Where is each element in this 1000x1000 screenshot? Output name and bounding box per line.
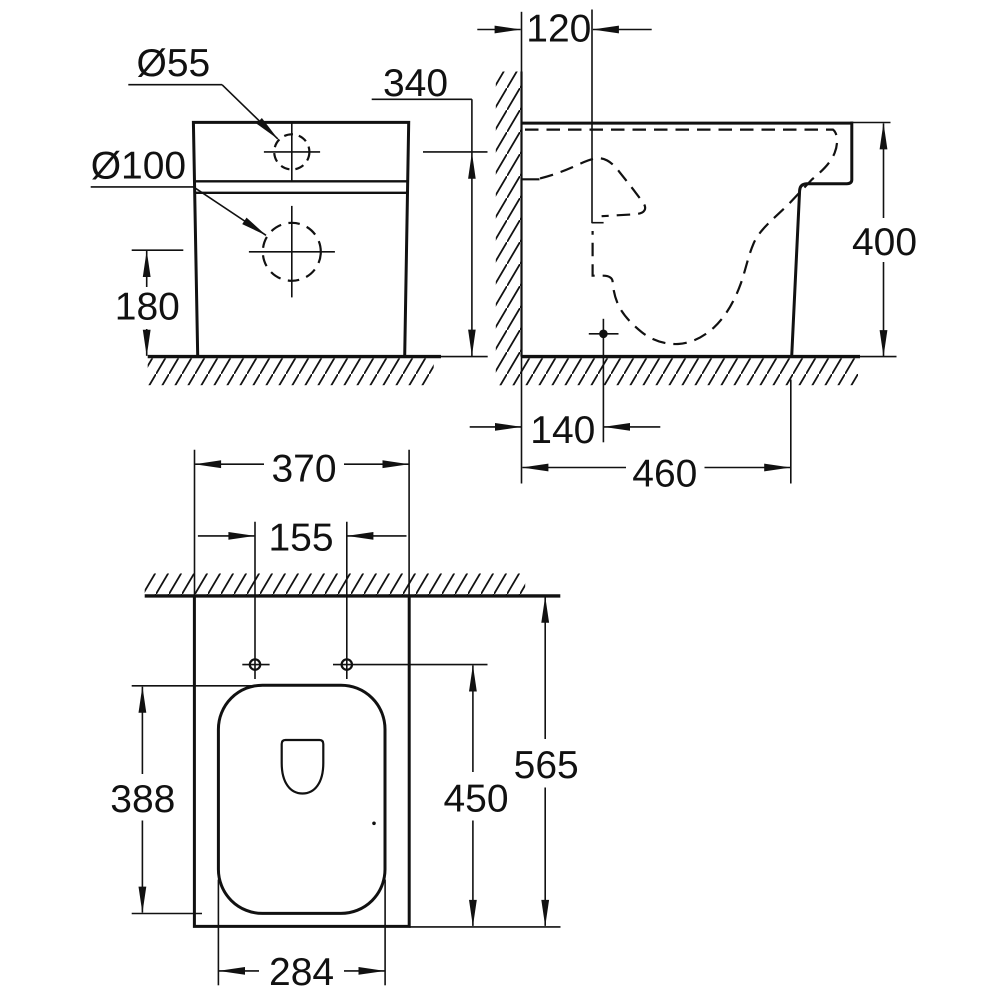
dim-155-text: 155 [268,516,333,559]
dim-460-text: 460 [632,452,697,495]
dim-388-text: 388 [110,778,175,821]
dim-180-text: 180 [115,286,180,329]
front-floor-hatch [148,358,434,385]
dim-370-text: 370 [271,447,336,490]
outlet-diameter-text: Ø100 [91,145,186,188]
top-wall-hatch [145,574,526,596]
inlet-diameter-text: Ø55 [137,42,211,85]
dim-284-text: 284 [269,951,334,994]
dim-120-text: 120 [526,7,591,50]
side-wall-hatch [496,72,522,386]
print-speck [372,822,376,826]
side-floor-hatch [522,358,859,385]
dim-140-text: 140 [530,409,595,452]
dim-400-text: 400 [852,221,917,264]
dim-450-text: 450 [443,777,508,820]
technical-drawing: Ø55 Ø100 340 180 [0,0,1000,1000]
dim-565-text: 565 [514,744,579,787]
